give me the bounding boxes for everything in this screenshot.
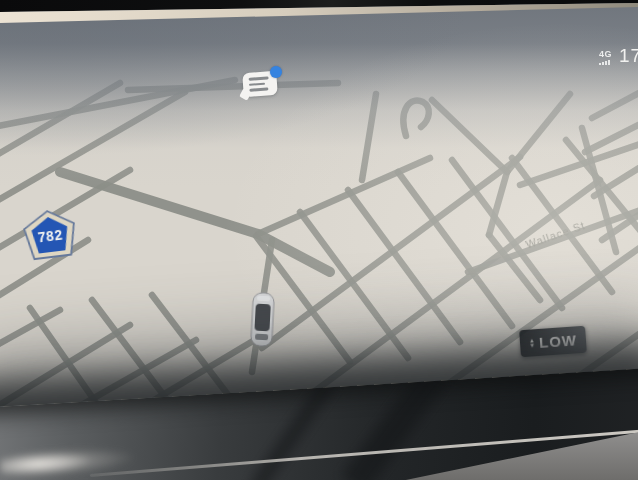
route-shield-number: 782 — [37, 227, 64, 246]
low-button[interactable]: ▲▼ LOW — [519, 326, 587, 358]
notification-dot — [270, 66, 282, 78]
low-button-label: LOW — [538, 331, 577, 351]
network-status: 4G — [599, 49, 617, 65]
up-down-arrows-icon: ▲▼ — [529, 338, 536, 348]
dashboard-reflection — [250, 376, 337, 480]
network-label: 4G — [599, 49, 617, 59]
status-time: 17 — [619, 45, 638, 67]
infotainment-screen-photo: Wallace St 782 ▲▼ LOW 4G 17 — [0, 0, 638, 480]
signal-bars-icon — [599, 60, 617, 65]
vehicle-position-icon — [247, 290, 280, 349]
route-shield: 782 — [21, 207, 78, 261]
message-notification-icon[interactable] — [241, 66, 285, 106]
